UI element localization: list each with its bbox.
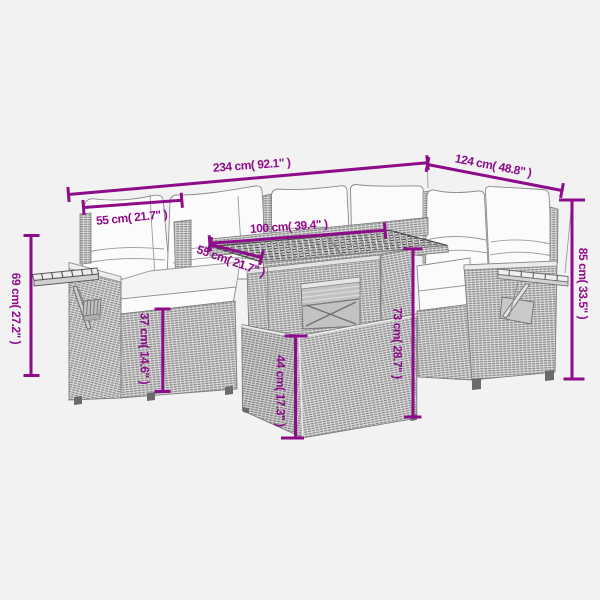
svg-text:37 cm( 14.6" ): 37 cm( 14.6" ) (138, 313, 152, 385)
svg-text:85 cm( 33.5" ): 85 cm( 33.5" ) (576, 248, 590, 320)
svg-text:73 cm( 28.7" ): 73 cm( 28.7" ) (391, 307, 405, 379)
svg-text:44 cm( 17.3" ): 44 cm( 17.3" ) (274, 355, 288, 427)
svg-text:69 cm( 27.2" ): 69 cm( 27.2" ) (9, 273, 23, 345)
